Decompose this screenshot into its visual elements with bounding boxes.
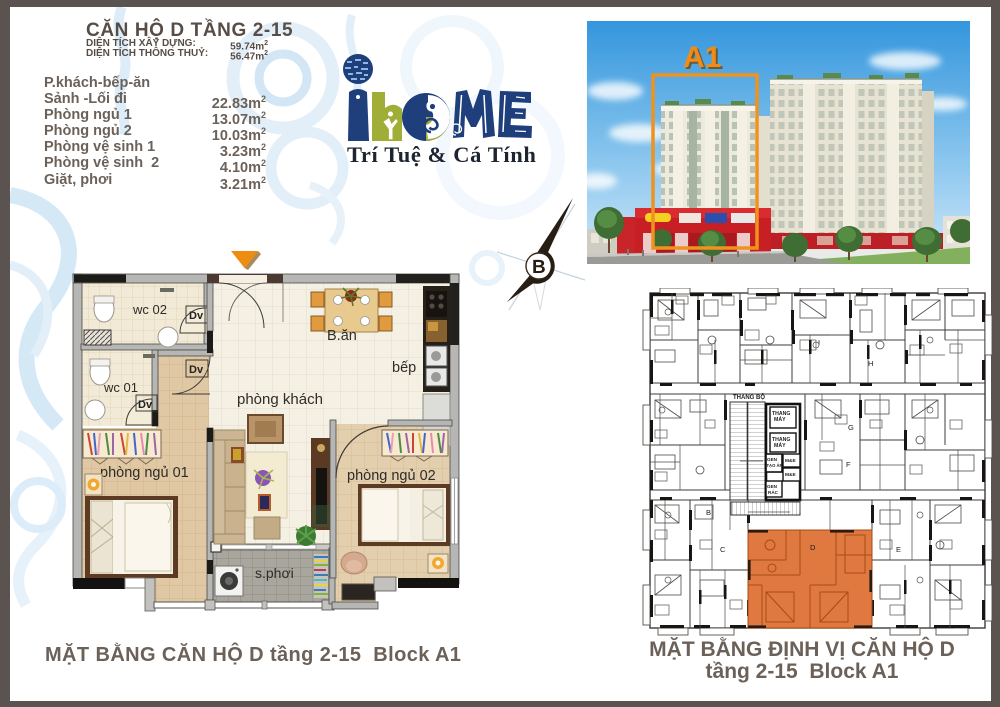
svg-text:E: E — [896, 545, 901, 554]
svg-text:Dv: Dv — [189, 364, 204, 376]
svg-text:GEN: GEN — [767, 484, 778, 489]
svg-text:phòng khách: phòng khách — [237, 391, 323, 408]
svg-text:THANG BỘ: THANG BỘ — [733, 393, 765, 401]
svg-text:bếp: bếp — [392, 360, 416, 376]
svg-text:MÁY: MÁY — [774, 442, 786, 449]
svg-text:M&E: M&E — [785, 472, 796, 478]
svg-text:G: G — [848, 423, 854, 432]
svg-text:Dv: Dv — [138, 399, 153, 411]
svg-text:RÁC: RÁC — [768, 489, 779, 495]
svg-text:wc 02: wc 02 — [132, 302, 167, 317]
svg-text:MÁY: MÁY — [774, 416, 786, 423]
svg-text:B: B — [706, 508, 711, 517]
svg-text:H: H — [868, 359, 873, 368]
svg-text:s.phơi: s.phơi — [255, 565, 294, 581]
svg-text:Trí Tuệ & Cá Tính: Trí Tuệ & Cá Tính — [347, 142, 536, 167]
svg-text:TẠO ÁP: TẠO ÁP — [767, 463, 783, 468]
svg-text:phòng ngủ 02: phòng ngủ 02 — [347, 468, 436, 484]
svg-text:GEN: GEN — [767, 457, 778, 462]
svg-text:wc 01: wc 01 — [103, 380, 138, 395]
svg-text:B.ăn: B.ăn — [327, 328, 357, 344]
svg-text:phòng ngủ 01: phòng ngủ 01 — [100, 465, 189, 481]
svg-text:C: C — [720, 545, 726, 554]
svg-text:A1: A1 — [683, 41, 721, 74]
svg-text:B: B — [532, 257, 546, 278]
svg-text:M&E: M&E — [785, 458, 796, 464]
svg-text:D: D — [810, 543, 816, 552]
svg-text:Dv: Dv — [189, 310, 204, 322]
svg-text:F: F — [846, 460, 851, 469]
